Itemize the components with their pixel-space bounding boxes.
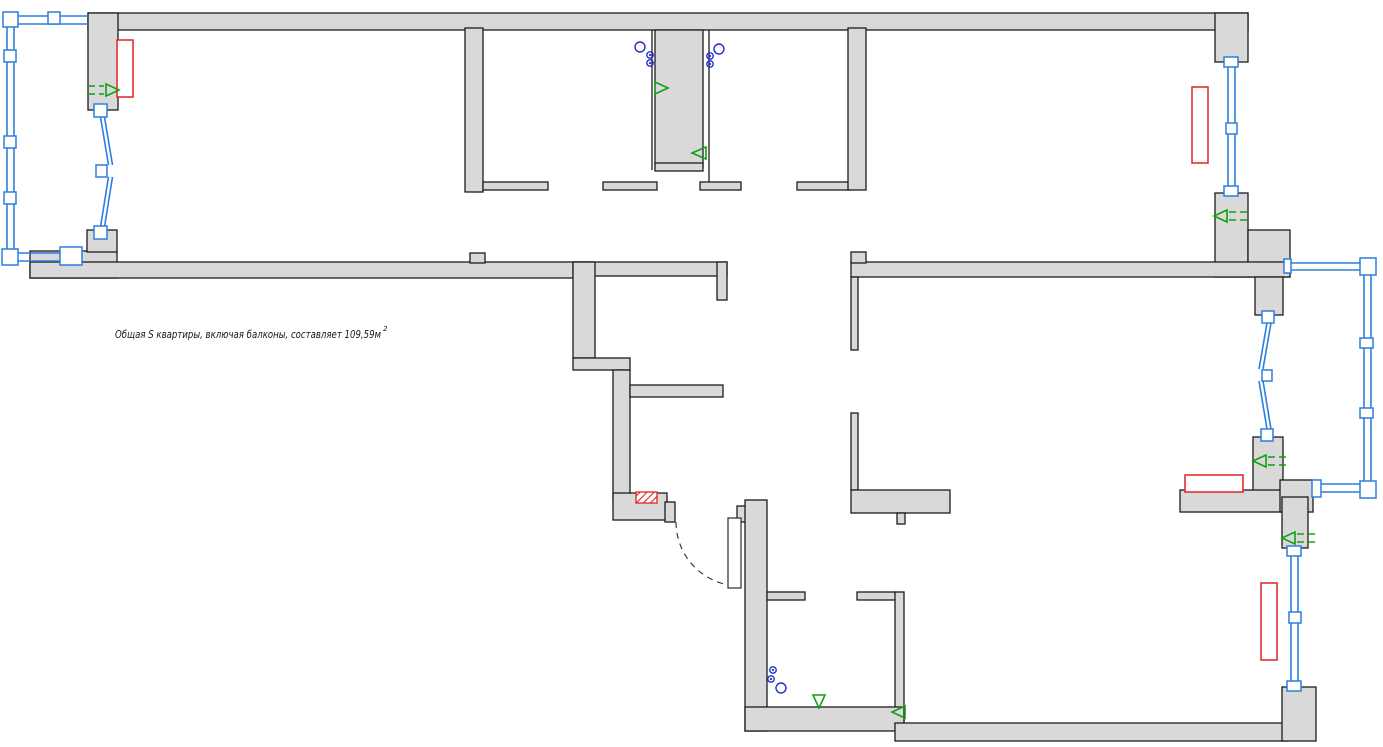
door-hinge bbox=[94, 104, 107, 117]
wall bbox=[573, 262, 595, 358]
wall bbox=[700, 182, 741, 190]
door-handle bbox=[1262, 370, 1272, 381]
door-leaf bbox=[105, 117, 113, 165]
window-bottom-right bbox=[1287, 546, 1301, 691]
wall bbox=[88, 13, 1248, 30]
wall bbox=[897, 513, 905, 524]
wall bbox=[717, 262, 727, 300]
door-swing-arc bbox=[676, 522, 729, 585]
walls bbox=[30, 13, 1316, 741]
socket-dot bbox=[772, 669, 774, 671]
wall bbox=[1180, 490, 1283, 512]
socket-dot bbox=[770, 678, 772, 680]
glazing-post bbox=[1360, 258, 1376, 275]
glazing-post bbox=[4, 192, 16, 204]
wall bbox=[30, 262, 593, 278]
wall bbox=[1255, 277, 1283, 315]
window-cap bbox=[1224, 186, 1238, 196]
door-leaf bbox=[1259, 323, 1267, 369]
wall bbox=[745, 707, 904, 731]
area-label: Общая S квартиры, включая балконы, соста… bbox=[115, 328, 381, 341]
radiator-symbol bbox=[1185, 475, 1243, 492]
wall bbox=[745, 500, 767, 731]
wall bbox=[1253, 437, 1283, 497]
floor-plan-canvas: Общая S квартиры, включая балконы, соста… bbox=[0, 0, 1383, 747]
lamp-symbol bbox=[635, 42, 645, 52]
socket-dot bbox=[709, 63, 711, 65]
window-mullion bbox=[1226, 123, 1237, 134]
lamp-symbol bbox=[714, 44, 724, 54]
wall bbox=[1215, 13, 1248, 62]
socket-dot bbox=[649, 62, 651, 64]
wall bbox=[848, 28, 866, 190]
door-handle bbox=[96, 165, 107, 177]
glazing-post bbox=[2, 249, 18, 265]
wall bbox=[895, 723, 1287, 741]
glazing-post bbox=[1360, 338, 1373, 348]
wall bbox=[465, 28, 483, 192]
wall bbox=[603, 182, 657, 190]
outlet-group bbox=[635, 42, 653, 66]
door-hinge bbox=[1262, 311, 1274, 323]
wall bbox=[851, 252, 866, 263]
floor-plan: Общая S квартиры, включая балконы, соста… bbox=[0, 0, 1383, 747]
window-cap bbox=[1287, 546, 1301, 556]
wall bbox=[851, 413, 858, 490]
door-hinge bbox=[94, 226, 107, 239]
right-balcony-glazing bbox=[1284, 258, 1376, 498]
glazing-post bbox=[60, 247, 82, 265]
window-mullion bbox=[1289, 612, 1301, 623]
wall bbox=[767, 592, 805, 600]
wall bbox=[630, 385, 723, 397]
glazing-post bbox=[4, 50, 16, 62]
wall bbox=[851, 277, 858, 350]
wall bbox=[851, 262, 1290, 277]
glazing-post bbox=[1284, 259, 1291, 273]
glazing-post bbox=[3, 12, 18, 27]
glazing-post bbox=[1360, 408, 1373, 418]
vent-shaft bbox=[655, 30, 703, 167]
glazing-post bbox=[1312, 480, 1321, 497]
glazing-post bbox=[48, 12, 60, 24]
glazing-post bbox=[1360, 481, 1376, 498]
window-cap bbox=[1287, 681, 1301, 691]
area-label-superscript: 2 bbox=[383, 325, 388, 333]
socket-dot bbox=[709, 55, 711, 57]
window-top-right bbox=[1224, 57, 1238, 196]
wall bbox=[613, 370, 630, 500]
right-balcony-door bbox=[1259, 311, 1274, 441]
door-leaf bbox=[1259, 381, 1267, 429]
glazing-post bbox=[4, 136, 16, 148]
wall bbox=[573, 358, 630, 370]
window-cap bbox=[1224, 57, 1238, 67]
radiator-symbol bbox=[117, 40, 133, 97]
wall bbox=[851, 490, 950, 513]
wall bbox=[655, 163, 703, 171]
wall bbox=[1282, 687, 1316, 741]
door-leaf bbox=[1263, 381, 1271, 429]
door-leaf bbox=[101, 177, 109, 227]
door-leaf bbox=[105, 177, 113, 227]
wall bbox=[857, 592, 896, 600]
area-annotation: Общая S квартиры, включая балконы, соста… bbox=[115, 325, 388, 341]
door-leaf bbox=[1263, 323, 1271, 369]
wall bbox=[797, 182, 851, 190]
lamp-symbol bbox=[776, 683, 786, 693]
door-leaf bbox=[728, 518, 741, 588]
wall bbox=[483, 182, 548, 190]
radiator-symbol bbox=[1192, 87, 1208, 163]
left-balcony-glazing bbox=[2, 12, 88, 265]
wall bbox=[573, 262, 727, 276]
wall bbox=[665, 502, 675, 522]
outlet-group bbox=[768, 667, 786, 693]
wall bbox=[470, 253, 485, 263]
door-leaf bbox=[101, 117, 109, 165]
socket-dot bbox=[649, 54, 651, 56]
vent-arrow bbox=[813, 695, 825, 708]
vents bbox=[88, 82, 1318, 718]
entry-door bbox=[676, 518, 741, 588]
entry-panel-hatch bbox=[636, 492, 657, 503]
door-hinge bbox=[1261, 429, 1273, 441]
wall bbox=[88, 13, 118, 110]
radiator-symbol bbox=[1261, 583, 1277, 660]
left-balcony-door bbox=[94, 104, 113, 239]
